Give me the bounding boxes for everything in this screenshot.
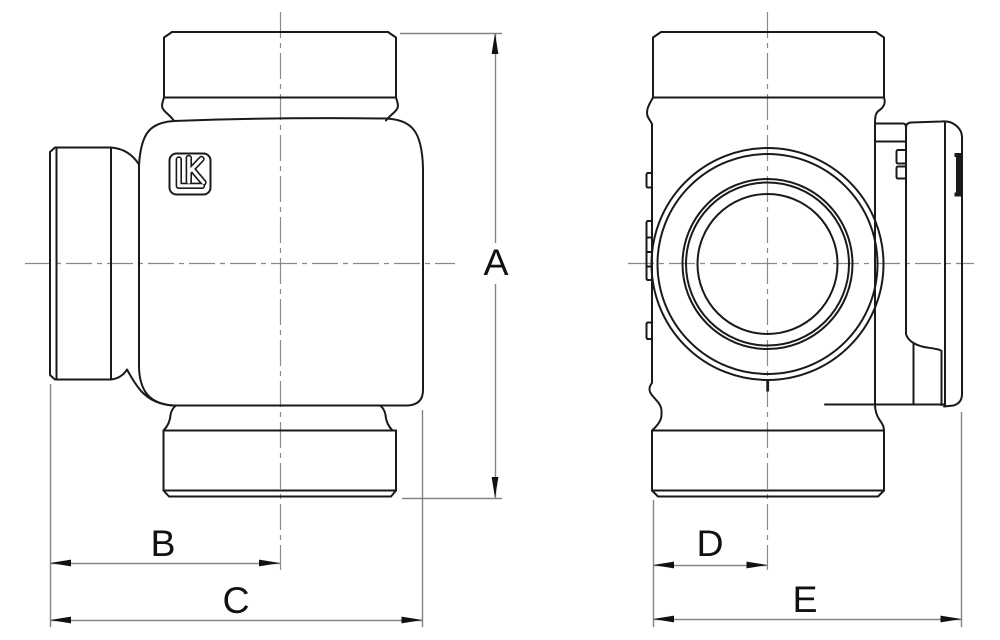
svg-text:E: E: [792, 578, 817, 620]
svg-text:B: B: [150, 522, 175, 564]
svg-text:C: C: [222, 579, 249, 621]
svg-text:D: D: [696, 522, 723, 564]
svg-text:A: A: [483, 241, 508, 283]
